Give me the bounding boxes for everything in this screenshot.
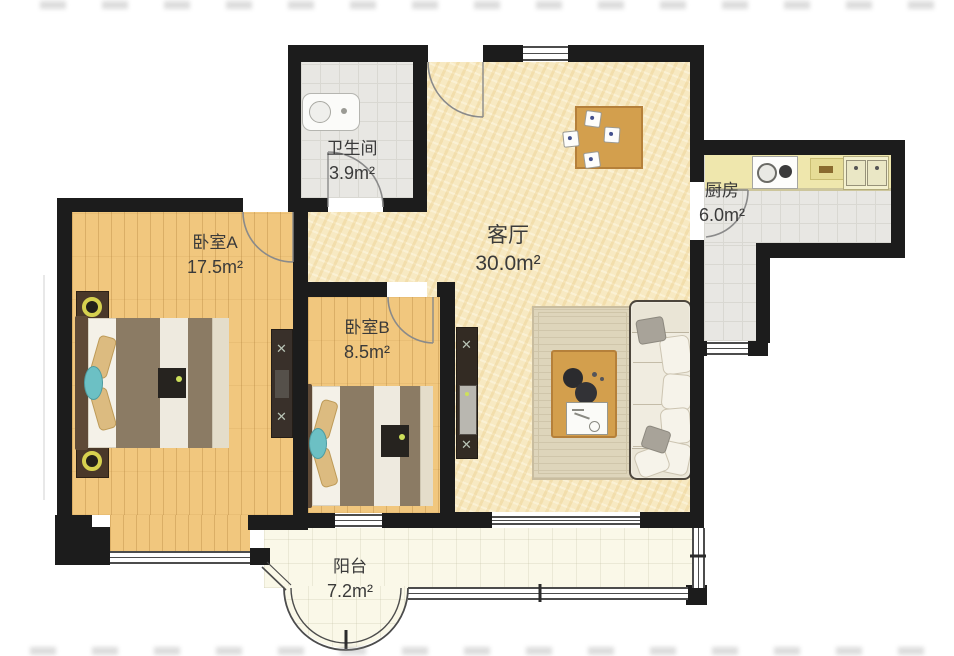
bedside-lamp-icon [82,297,102,317]
sofa-back-cushion [660,373,693,411]
wall [748,341,768,356]
plate [603,126,620,143]
room-area: 7.2m² [290,579,410,603]
room-area: 8.5m² [307,340,427,364]
wall [288,45,301,212]
wall [288,45,428,62]
sink-basin-right [867,160,887,186]
room-area: 17.5m² [145,255,285,279]
cabinet-x-icon: ✕ [461,338,472,351]
room-area: 30.0m² [438,250,578,278]
kettle-icon [575,382,597,404]
bedroom-a-bay-floor [110,515,250,552]
wardrobe-bedroom-a: ✕ ✕ [271,329,293,438]
bedside-lamp-icon [82,451,102,471]
room-name: 厨房 [672,180,772,203]
wall [55,515,92,565]
balcony-slider [492,516,640,525]
room-label-living: 客厅 30.0m² [438,222,578,279]
room-label-bedroom-b: 卧室B 8.5m² [307,317,427,364]
wall [690,45,704,182]
wall [690,240,704,343]
coffee-table [551,350,617,438]
cup-icon [600,377,604,381]
hallway-floor [308,212,427,282]
sink-basin-icon [309,101,331,123]
wall [413,45,427,212]
room-area: 6.0m² [672,203,772,227]
room-name: 卧室A [145,232,285,255]
wall [483,45,523,62]
room-label-balcony: 阳台 7.2m² [290,556,410,603]
sink-faucet-icon [341,108,347,114]
window [707,342,748,355]
seat-line [633,404,663,405]
wall [455,512,492,528]
room-name: 卫生间 [302,138,402,161]
plate [583,151,601,169]
wardrobe-mid [275,370,289,398]
cropped-text-smudge-top [40,1,940,9]
wall [383,198,413,212]
bathroom-sink [302,93,360,131]
cabinet-x-icon: ✕ [461,438,472,451]
wall [92,527,110,565]
cup-icon [592,372,597,377]
bed-a [75,316,228,450]
wall [686,585,707,605]
bed-b [301,384,432,508]
tray-item [589,421,600,432]
wall [568,45,704,62]
wall [640,512,704,528]
cropped-text-smudge-bottom [30,647,940,655]
wall [891,140,905,258]
wall [690,341,707,356]
throw-pillow [635,316,667,345]
room-label-kitchen: 厨房 6.0m² [672,180,772,227]
cabinet-x-icon: ✕ [276,410,287,423]
board-item [819,166,833,173]
wall [308,282,387,297]
floor-plan: ✕ ✕ ✕ ✕ [0,0,954,656]
wall [250,548,270,565]
seat-line [633,362,663,363]
room-label-bedroom-a: 卧室A 17.5m² [145,232,285,279]
tray [566,402,608,435]
wall [704,140,905,155]
wall [57,198,72,530]
plate [562,130,580,148]
window [523,46,568,61]
kitchen-sink [843,156,889,190]
cabinet-x-icon: ✕ [276,342,287,355]
wall [57,198,243,212]
sofa [629,300,692,480]
plate [584,110,602,128]
room-name: 卧室B [307,317,427,340]
window [335,514,382,527]
tray-item [574,412,590,419]
teal-pillow [309,428,327,459]
tv-cabinet-living: ✕ ✕ [456,327,478,459]
bed-tray [381,425,409,457]
pot-icon [779,165,792,178]
cutting-board [810,158,844,180]
room-area: 3.9m² [302,161,402,185]
bed-tray [158,368,186,398]
tv-screen [459,385,477,435]
bed-foot-edge [212,318,229,448]
bay-window [110,551,250,564]
wall [382,513,455,528]
wall [293,198,308,530]
wall [756,243,905,258]
balcony-window-right [692,528,705,588]
wall [756,243,770,343]
room-label-bathroom: 卫生间 3.9m² [302,138,402,185]
balcony-window-bottom [408,587,688,600]
wall [440,282,455,528]
teal-pillow [84,366,103,400]
bed-foot-edge [420,386,433,506]
room-name: 客厅 [438,222,578,250]
room-name: 阳台 [290,556,410,579]
wall [690,355,704,528]
sink-basin-left [846,160,866,186]
wall [248,515,293,530]
tray-item [572,409,584,411]
kitchen-corridor-floor [704,243,756,341]
wall [293,513,335,528]
